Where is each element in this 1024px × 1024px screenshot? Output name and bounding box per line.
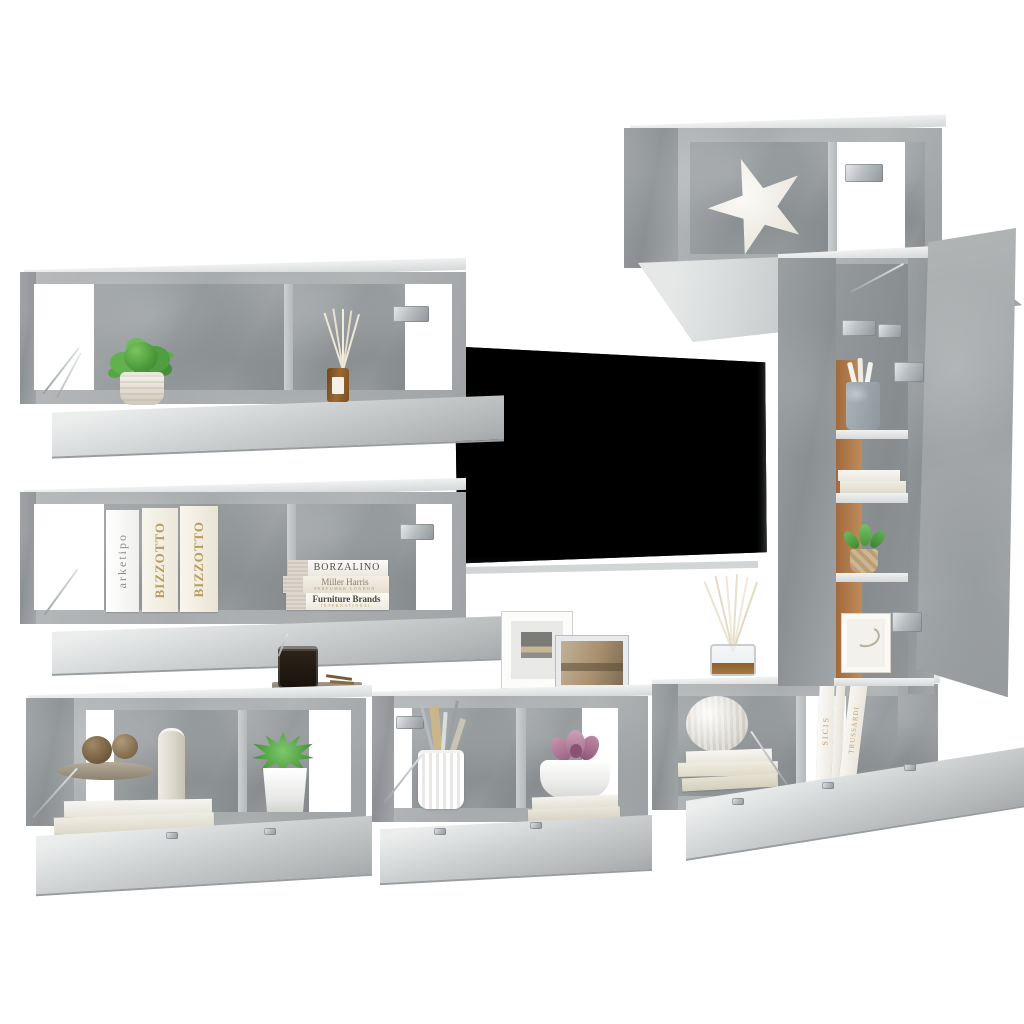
stacked-book-miller-harris: Miller Harris PERFUMER LONDON — [283, 576, 389, 593]
shelf-carcass — [20, 272, 466, 404]
flap-hinge — [530, 822, 542, 829]
white-books — [838, 470, 900, 481]
low-cabinet-left — [26, 640, 374, 880]
mounting-bracket — [393, 306, 429, 322]
wall-shelf-upper-left — [20, 258, 490, 458]
book-spine-label-wrap: BIZZOTTO — [180, 506, 218, 612]
flap-hinge — [822, 782, 834, 789]
diffuser-oil — [712, 663, 754, 674]
book-spine-label: SICIS — [820, 716, 830, 746]
striped-sphere — [686, 696, 748, 752]
book-arketipo: arketipo — [106, 510, 139, 612]
stick — [342, 314, 360, 370]
mounting-bracket — [845, 164, 883, 182]
book-title-wrap: Miller Harris PERFUMER LONDON — [305, 576, 385, 593]
book-spine-label: BIZZOTTO — [191, 521, 207, 597]
flap-hinge — [904, 764, 916, 771]
book-spine-label: arketipo — [115, 533, 130, 588]
tv-screen — [448, 342, 770, 568]
interior-shelf — [836, 493, 908, 503]
diffuser-bottle-glass — [710, 644, 756, 676]
door-hinge — [894, 362, 924, 382]
product-photo-tv-wall-unit: arketipo BIZZOTTO BIZZOTTO BORZALINO Mil… — [0, 0, 1024, 1024]
flap-hinge — [732, 798, 744, 805]
diffuser-sticks — [316, 308, 372, 370]
cabinet-divider — [516, 708, 526, 808]
succulent-bowl — [540, 760, 610, 798]
flap-hinge — [264, 828, 276, 835]
cabinet-base — [834, 678, 934, 686]
diffuser-label — [332, 377, 344, 394]
book-title-wrap: BORZALINO — [310, 560, 384, 576]
stacked-book-borzalino: BORZALINO — [288, 560, 388, 576]
coffee-glass — [278, 646, 318, 689]
low-cabinet-middle — [372, 598, 654, 856]
ornate-picture-frame — [842, 614, 890, 672]
door-hinge — [842, 320, 876, 336]
book-subtitle: PERFUMER LONDON — [314, 587, 376, 591]
white-books — [840, 481, 906, 493]
interior-shelf — [836, 573, 908, 582]
mug — [846, 382, 880, 430]
diffuser-bottle — [327, 368, 349, 402]
tv — [448, 342, 770, 574]
book-bizzotto-2: BIZZOTTO — [180, 506, 218, 612]
pencil-cup — [418, 750, 464, 809]
plant-foliage — [124, 342, 158, 372]
open-flap-door — [52, 395, 504, 458]
succulent-leaves — [844, 522, 888, 552]
framed-photo-skyline — [561, 663, 623, 671]
cabinet-left-face — [778, 258, 836, 686]
door-hinge — [878, 324, 902, 338]
door-hinge — [892, 612, 922, 632]
book-pages-edge — [283, 576, 303, 593]
book-spine-label-wrap: BIZZOTTO — [142, 508, 178, 612]
plant-pot — [120, 372, 164, 405]
diffuser-sticks — [704, 572, 764, 652]
picture-frame-small — [556, 636, 628, 690]
cabinet-left-face — [624, 128, 678, 268]
book-subtitle: INTERNATIONAL — [321, 604, 373, 608]
book-spine-label: BIZZOTTO — [152, 522, 168, 598]
cabinet-divider — [238, 710, 247, 812]
cabinet-open-door — [914, 228, 1016, 702]
shelf-divider — [284, 284, 293, 390]
succulent-center — [570, 744, 582, 758]
book-pages-edge — [288, 560, 308, 576]
framed-photo — [521, 632, 552, 658]
interior-shelf — [836, 430, 908, 439]
book-title: BORZALINO — [314, 563, 381, 573]
pencil-cup-contents — [418, 706, 470, 756]
pillar-candle — [158, 728, 185, 807]
book-bizzotto-1: BIZZOTTO — [142, 508, 178, 612]
mounting-bracket — [400, 524, 434, 540]
open-flap-door — [380, 815, 652, 885]
frame-ornament — [852, 624, 882, 650]
succulent-white-pot — [260, 768, 310, 812]
cabinet-left-face — [652, 684, 678, 810]
flap-hinge — [434, 828, 446, 835]
book-spine-label: TRUSSARDI — [847, 706, 861, 755]
tall-cabinet-right — [776, 222, 1024, 702]
leaf — [859, 524, 871, 546]
flap-hinge — [166, 832, 178, 839]
decor-ball — [112, 734, 138, 759]
book-pages-edge — [286, 593, 306, 610]
decor-ball — [82, 736, 112, 764]
book-spine-label-wrap: arketipo — [106, 510, 139, 612]
woven-pot — [850, 549, 878, 573]
